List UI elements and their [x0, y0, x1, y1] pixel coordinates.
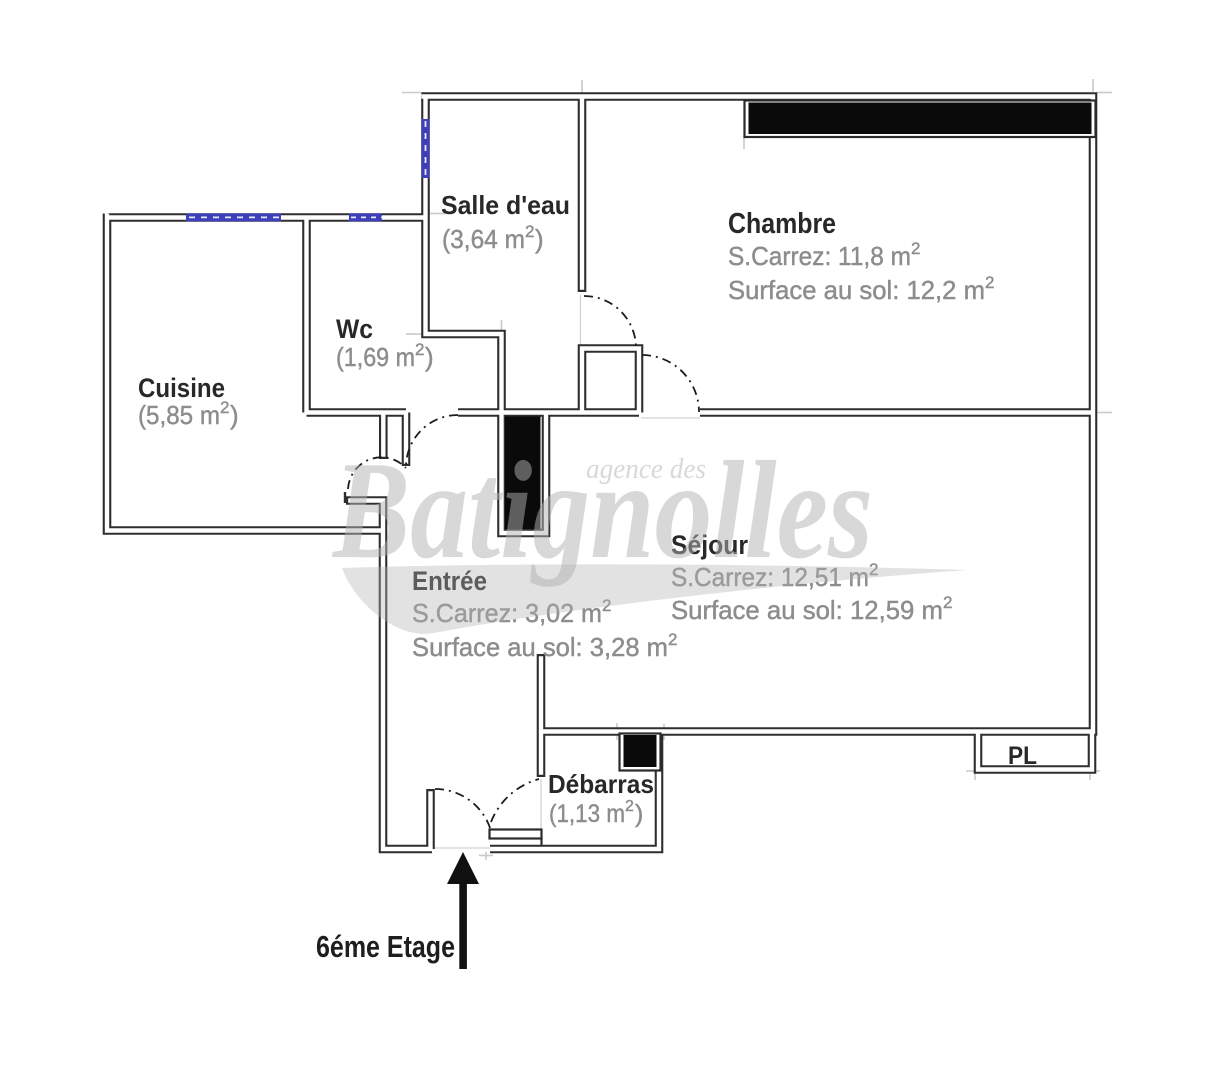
svg-text:2: 2	[943, 593, 952, 612]
svg-text:2: 2	[220, 398, 229, 417]
svg-text:Cuisine: Cuisine	[138, 373, 225, 403]
svg-text:Wc: Wc	[336, 314, 373, 344]
svg-text:(1,13 m: (1,13 m	[549, 800, 625, 828]
svg-text:(1,69 m: (1,69 m	[336, 342, 415, 372]
svg-text:Surface au sol: 3,28 m: Surface au sol: 3,28 m	[412, 632, 668, 662]
svg-text:2: 2	[625, 798, 634, 815]
svg-text:): )	[635, 800, 643, 828]
svg-text:Surface au sol: 12,2 m: Surface au sol: 12,2 m	[728, 275, 985, 305]
svg-text:2: 2	[668, 630, 677, 649]
svg-text:2: 2	[985, 273, 994, 292]
svg-text:(3,64 m: (3,64 m	[442, 224, 525, 254]
svg-text:Salle d'eau: Salle d'eau	[441, 190, 570, 220]
svg-text:Débarras: Débarras	[548, 769, 654, 799]
svg-text:Batignolles: Batignolles	[331, 433, 873, 588]
svg-text:(5,85 m: (5,85 m	[138, 400, 220, 430]
svg-text:): )	[535, 224, 544, 254]
svg-text:6éme Etage: 6éme Etage	[316, 929, 455, 964]
svg-text:2: 2	[415, 340, 424, 359]
svg-text:2: 2	[525, 222, 534, 241]
svg-text:Surface au sol: 12,59 m: Surface au sol: 12,59 m	[671, 595, 943, 625]
svg-text:PL: PL	[1008, 742, 1037, 770]
svg-text:): )	[425, 342, 434, 372]
svg-text:): )	[230, 400, 239, 430]
svg-text:S.Carrez: 11,8 m: S.Carrez: 11,8 m	[728, 241, 911, 271]
svg-text:2: 2	[911, 239, 920, 258]
svg-text:Chambre: Chambre	[728, 208, 836, 240]
